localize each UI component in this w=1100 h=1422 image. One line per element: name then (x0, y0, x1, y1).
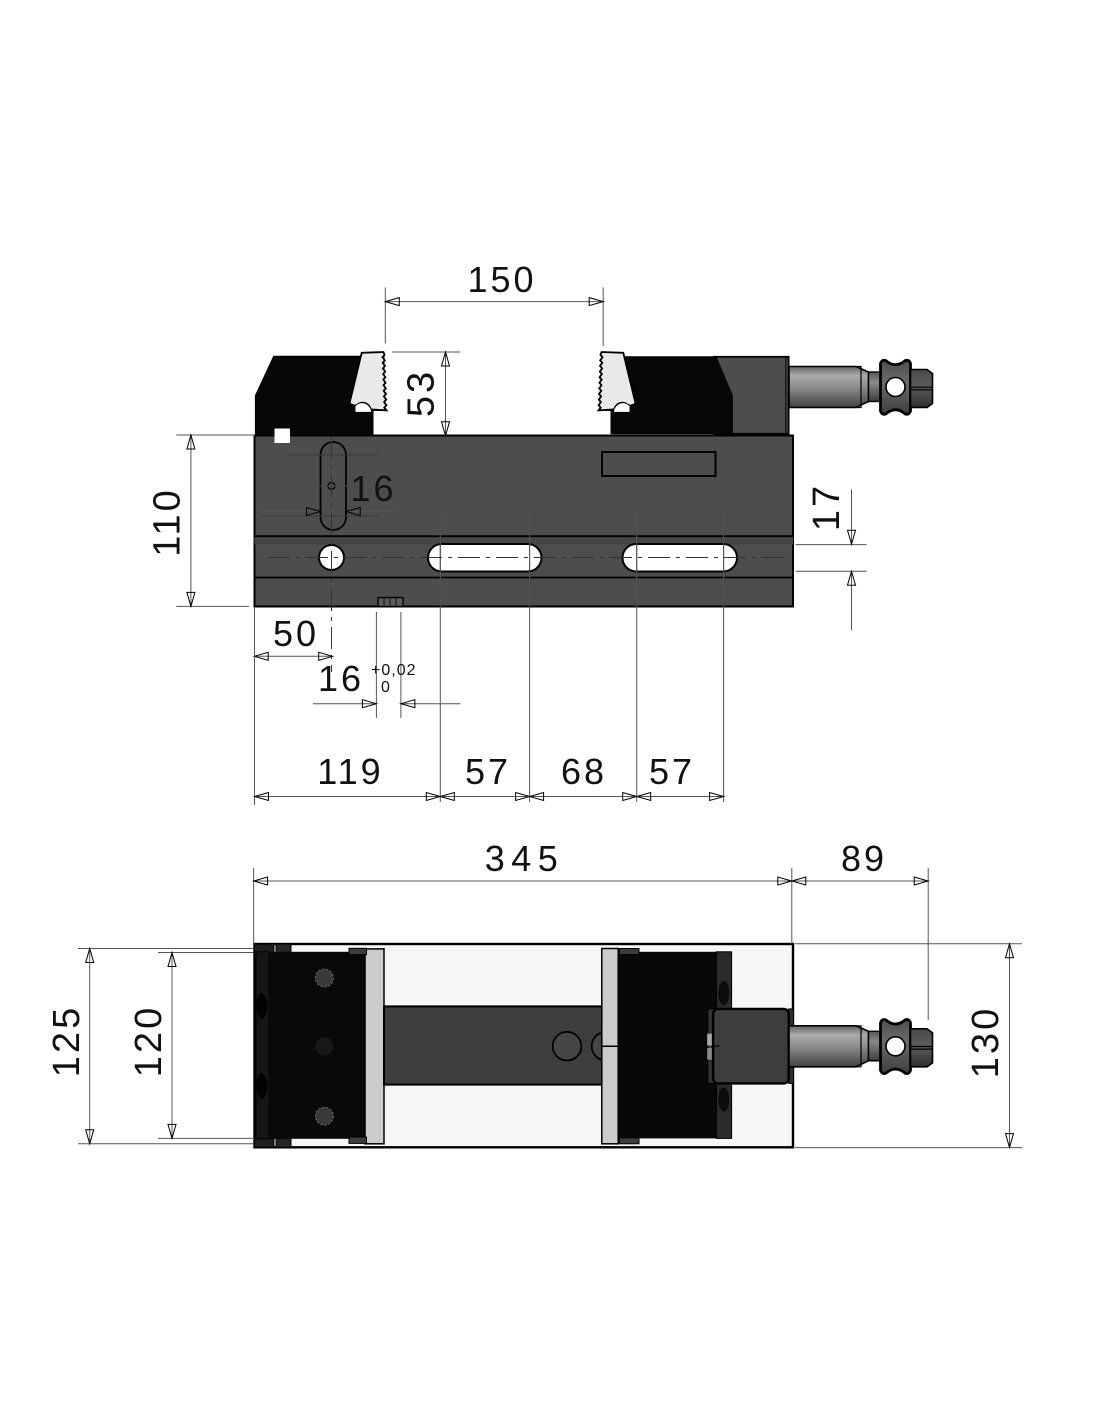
svg-text:119: 119 (317, 751, 383, 792)
svg-text:17: 17 (806, 483, 848, 531)
svg-text:120: 120 (128, 1005, 170, 1077)
svg-text:16: 16 (350, 468, 396, 509)
svg-text:57: 57 (465, 751, 511, 792)
svg-text:+0,02: +0,02 (371, 662, 416, 679)
svg-text:89: 89 (841, 838, 887, 879)
svg-text:53: 53 (401, 369, 443, 417)
svg-text:0: 0 (381, 679, 391, 696)
svg-text:57: 57 (649, 751, 695, 792)
svg-text:50: 50 (273, 613, 319, 654)
svg-text:345: 345 (485, 838, 565, 879)
svg-text:125: 125 (46, 1005, 88, 1077)
svg-text:150: 150 (467, 259, 536, 300)
svg-text:130: 130 (965, 1006, 1007, 1078)
svg-text:68: 68 (561, 751, 607, 792)
svg-text:110: 110 (147, 487, 189, 557)
svg-text:16: 16 (318, 658, 364, 699)
